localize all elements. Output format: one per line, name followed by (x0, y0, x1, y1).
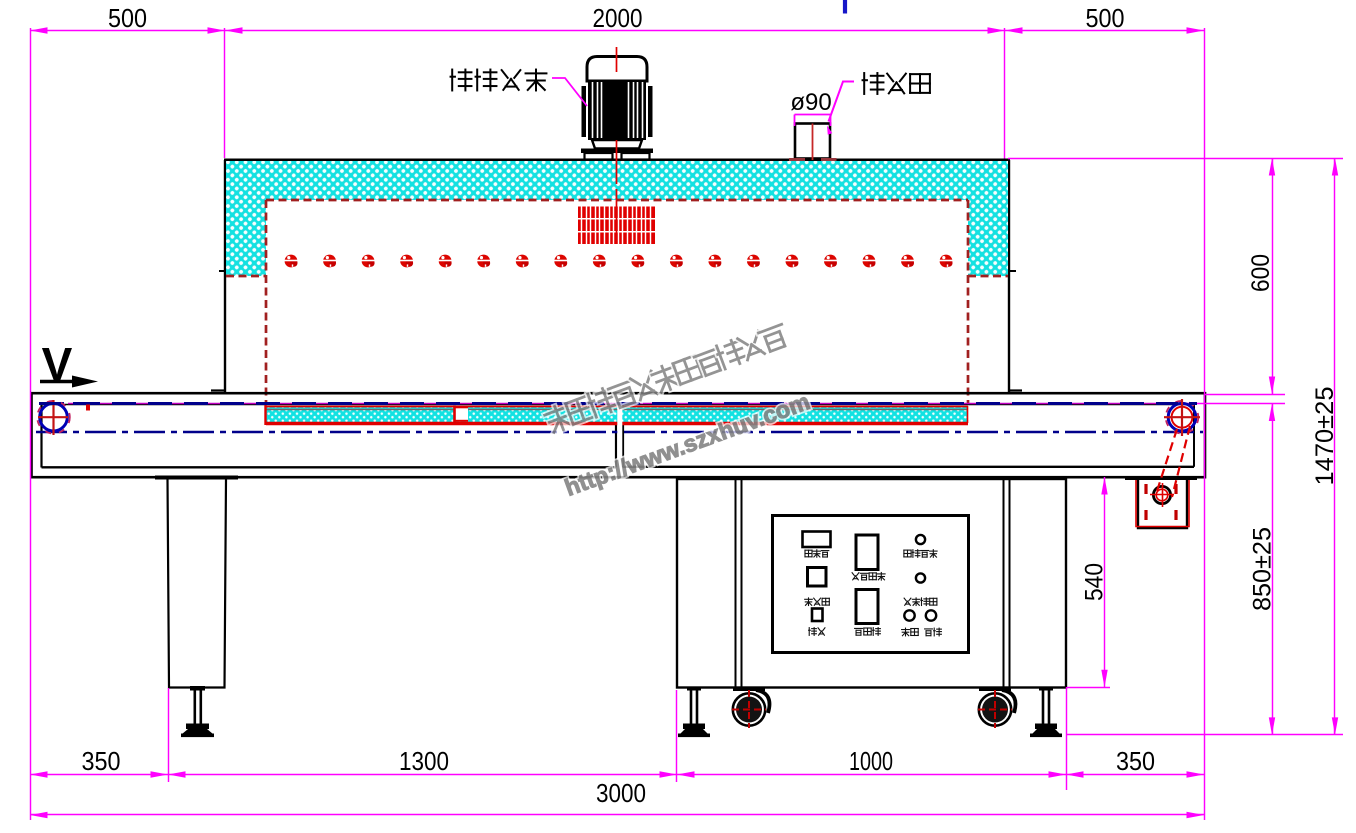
svg-text:1300: 1300 (399, 746, 449, 776)
svg-text:540: 540 (1081, 563, 1109, 601)
svg-text:500: 500 (1086, 3, 1125, 33)
svg-text:ø90: ø90 (790, 89, 831, 116)
svg-text:2000: 2000 (593, 3, 643, 33)
svg-text:1000: 1000 (849, 746, 893, 776)
svg-text:600: 600 (1247, 254, 1275, 292)
svg-text:500: 500 (108, 3, 147, 33)
svg-text:1470±25: 1470±25 (1311, 387, 1339, 486)
svg-text:350: 350 (82, 746, 121, 776)
svg-text:850±25: 850±25 (1249, 527, 1277, 611)
svg-text:3000: 3000 (596, 778, 646, 808)
svg-text:350: 350 (1116, 746, 1155, 776)
